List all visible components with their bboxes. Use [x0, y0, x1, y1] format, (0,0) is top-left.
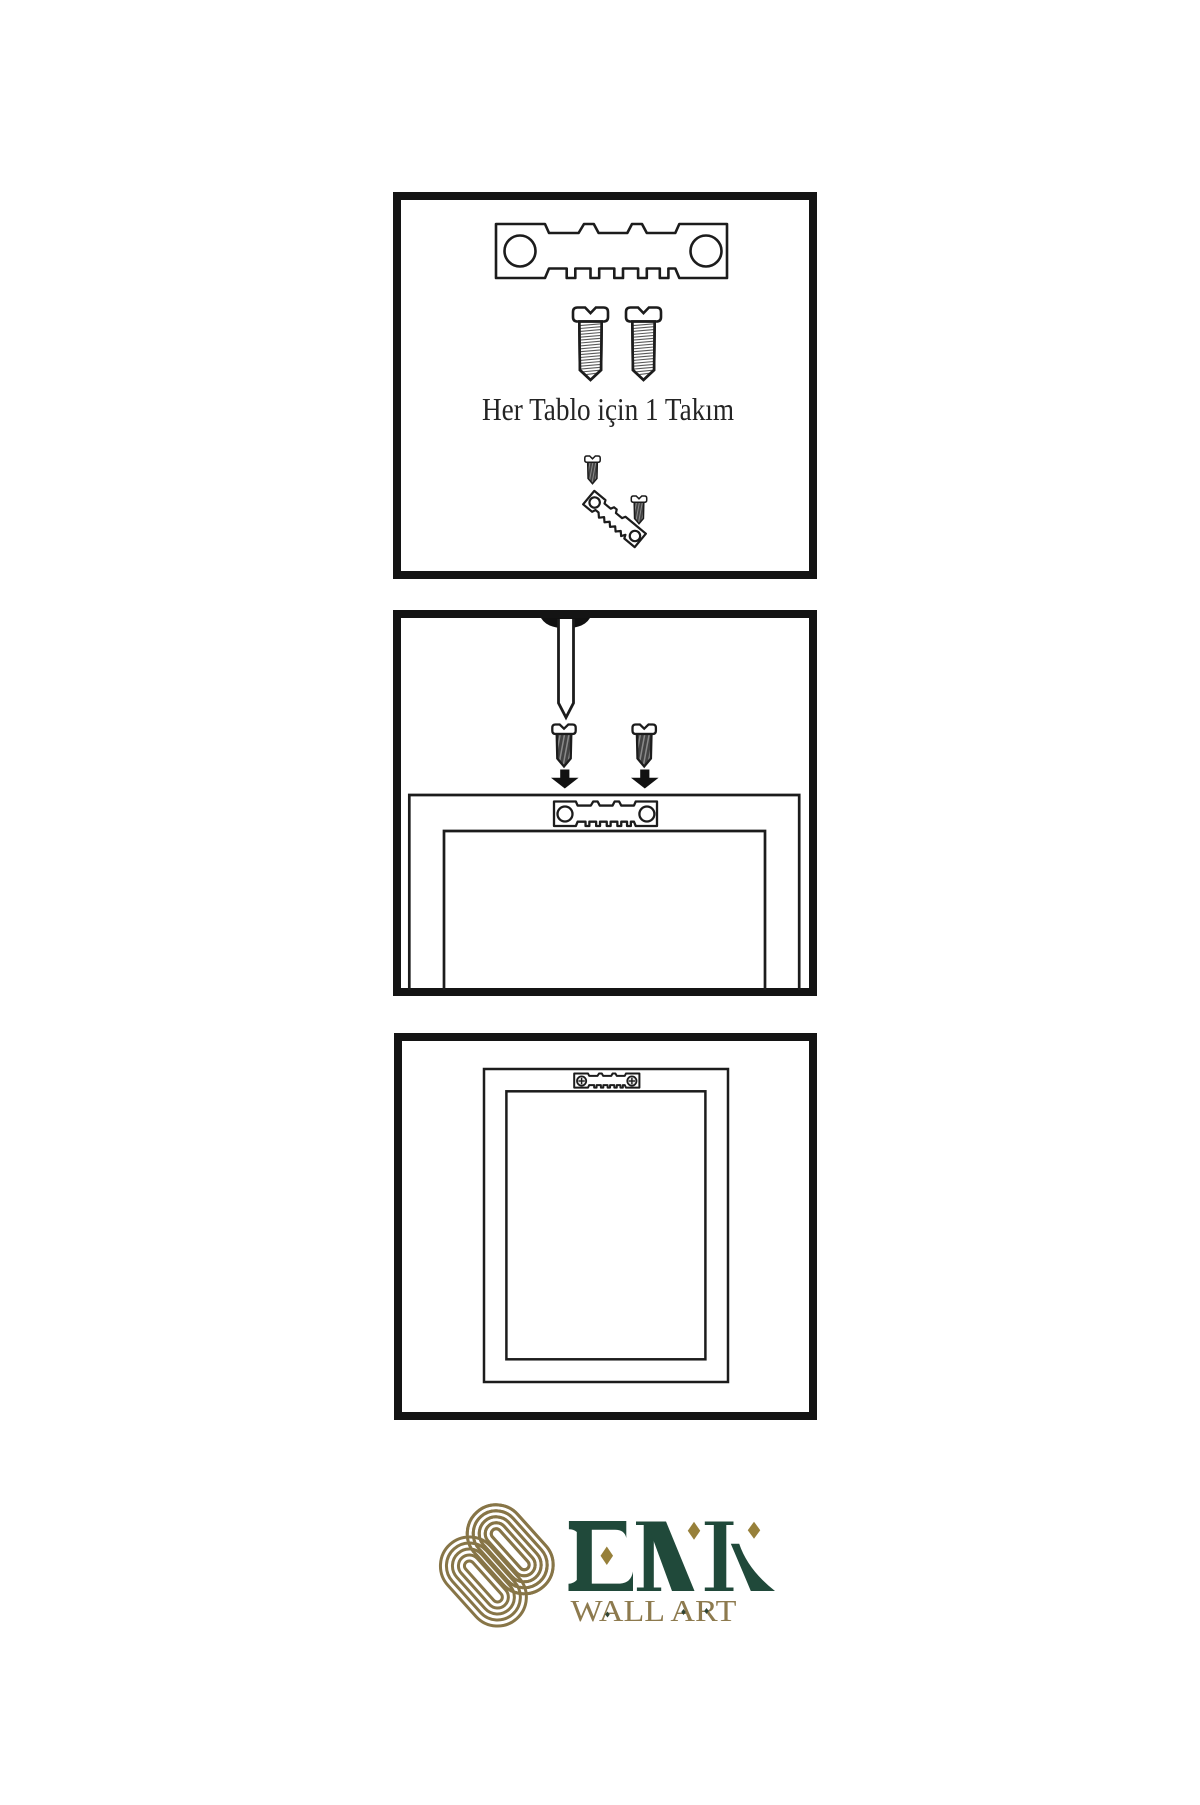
- svg-text:WALL ART: WALL ART: [571, 1593, 737, 1628]
- svg-text:Her Tablo için 1 Takım: Her Tablo için 1 Takım: [482, 391, 734, 427]
